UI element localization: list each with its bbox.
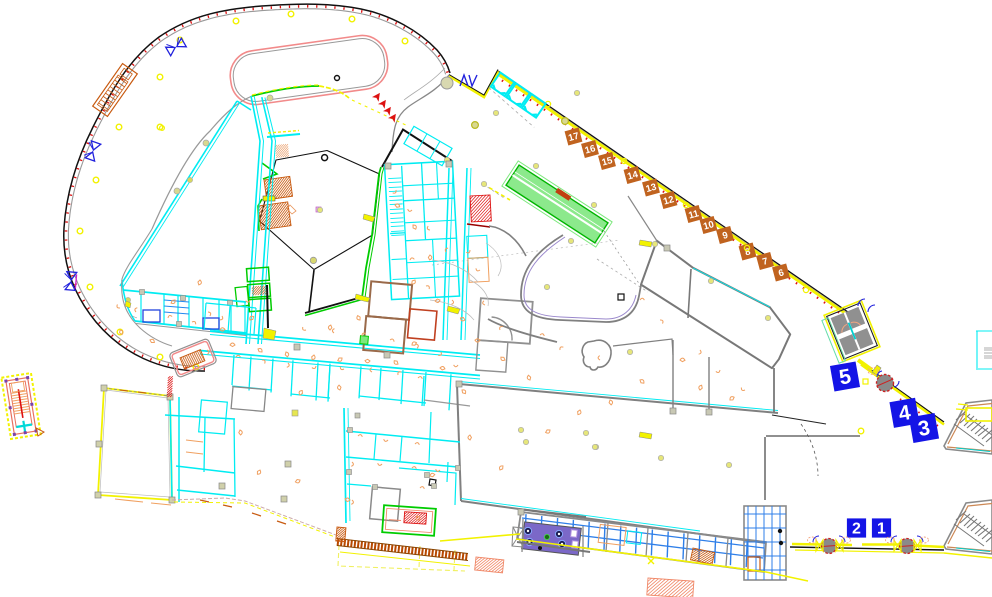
svg-text:2: 2 <box>852 520 861 537</box>
svg-text:1: 1 <box>877 520 886 537</box>
